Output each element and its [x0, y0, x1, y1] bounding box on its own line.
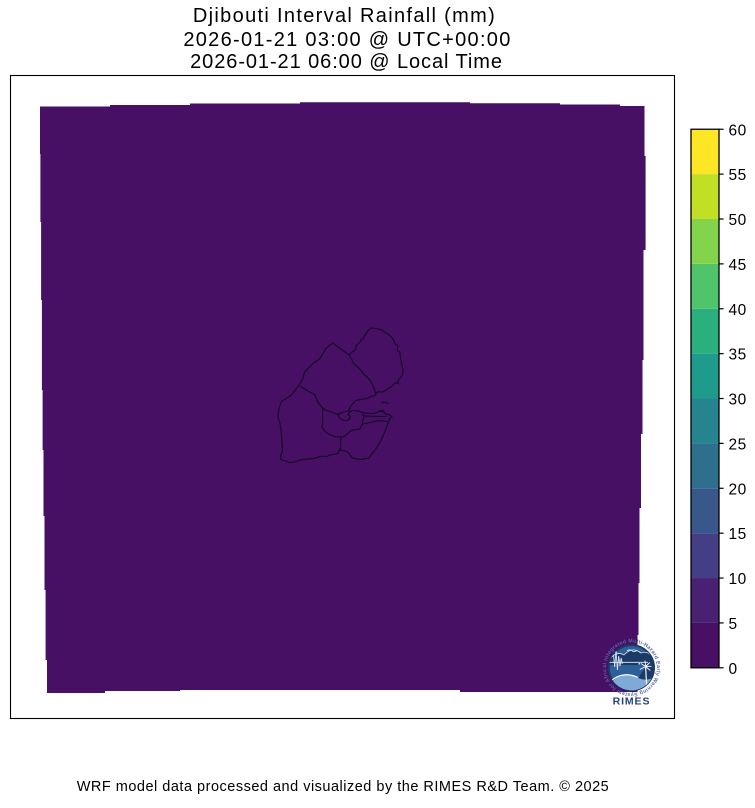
- svg-text:40: 40: [729, 302, 747, 319]
- svg-text:50: 50: [729, 212, 747, 229]
- svg-text:10: 10: [729, 571, 747, 588]
- svg-text:60: 60: [729, 122, 747, 139]
- svg-text:35: 35: [729, 347, 747, 364]
- svg-text:15: 15: [729, 526, 747, 543]
- svg-text:45: 45: [729, 257, 747, 274]
- svg-text:0: 0: [729, 661, 738, 678]
- svg-text:25: 25: [729, 436, 747, 453]
- svg-text:RIMES: RIMES: [613, 696, 651, 708]
- svg-text:5: 5: [729, 616, 738, 633]
- svg-text:55: 55: [729, 167, 747, 184]
- svg-text:20: 20: [729, 481, 747, 498]
- svg-text:30: 30: [729, 392, 747, 409]
